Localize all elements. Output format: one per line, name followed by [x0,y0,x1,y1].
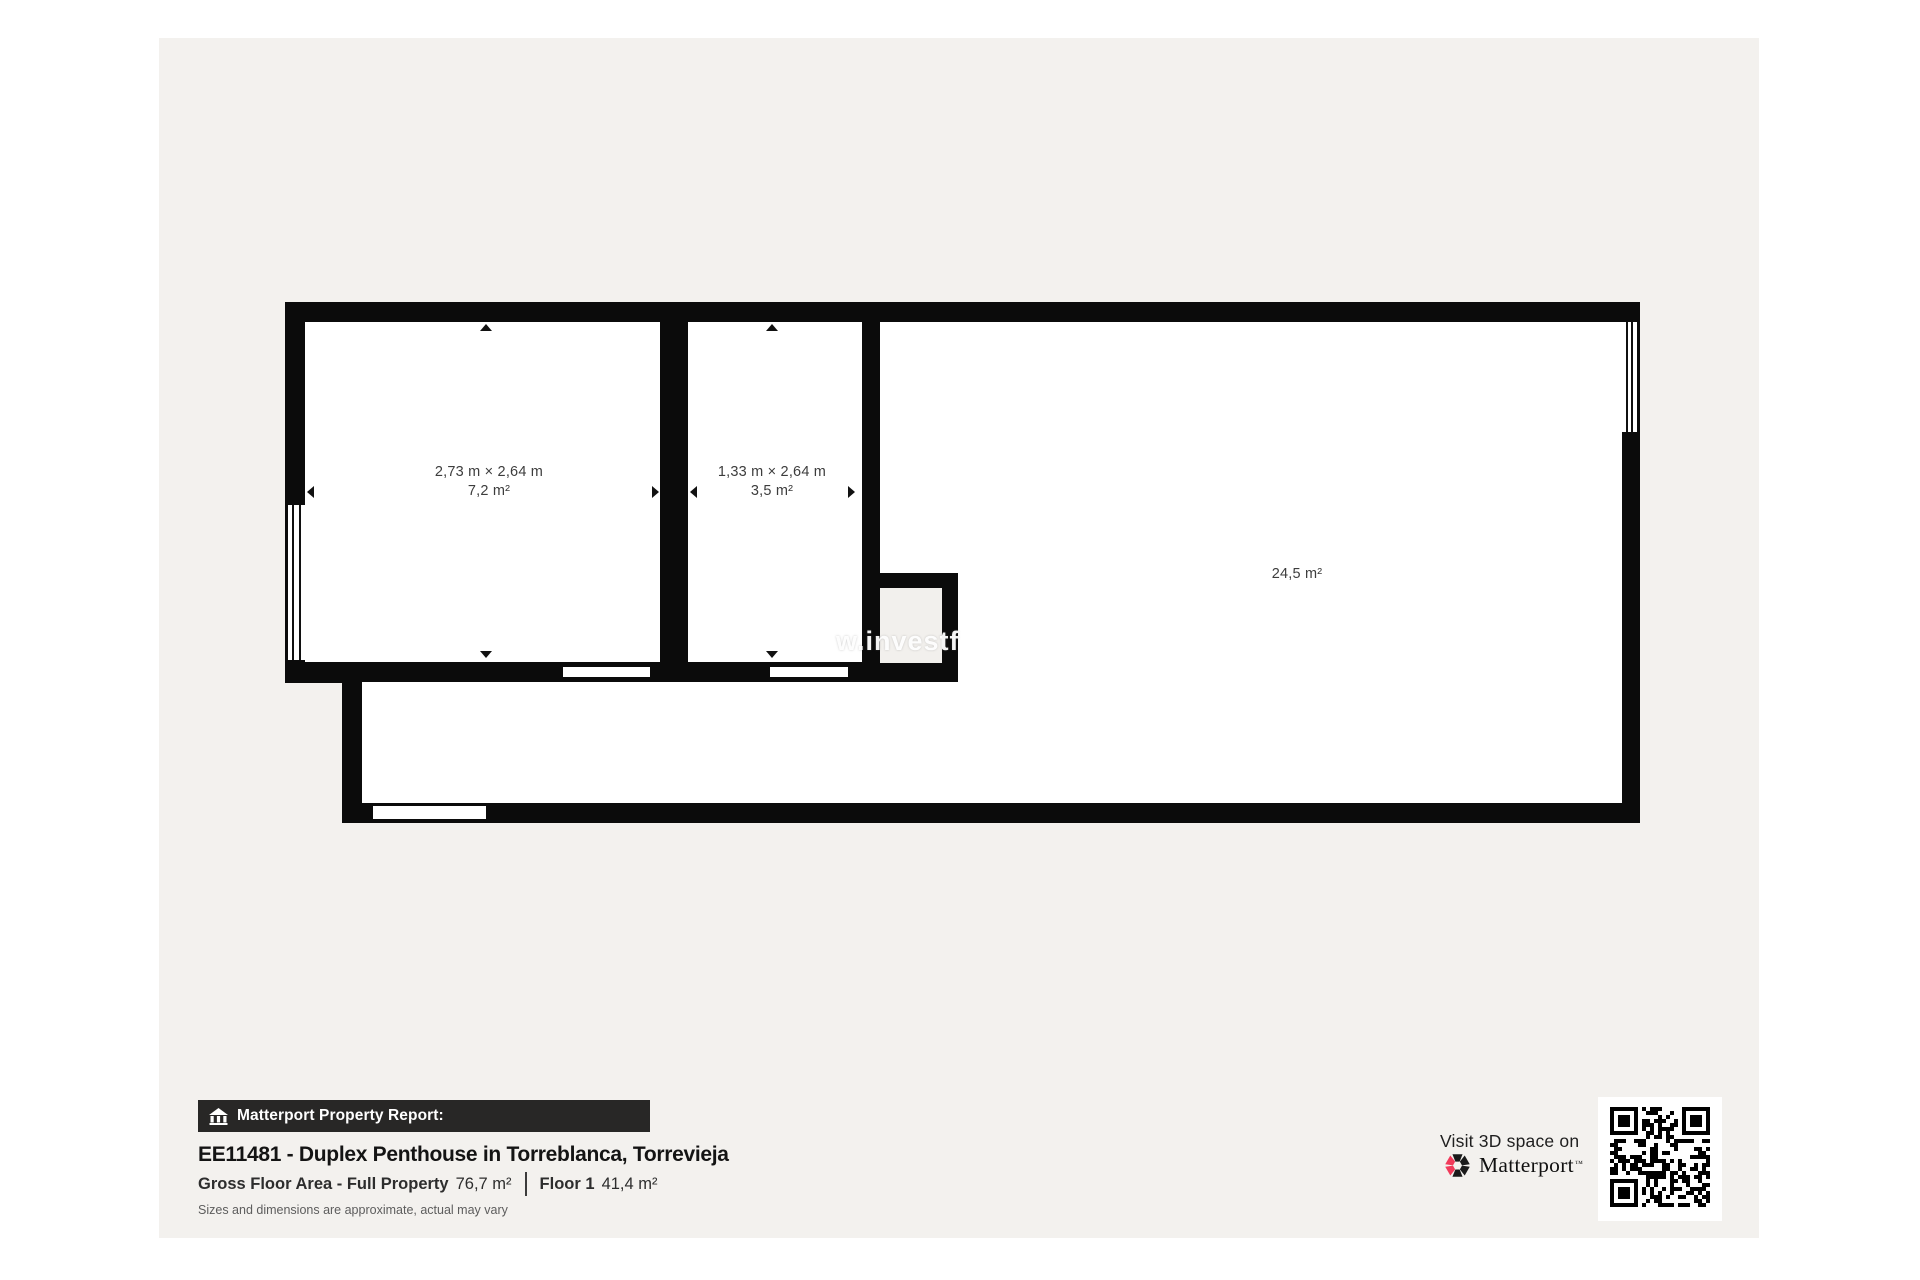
report-header-label: Matterport Property Report: [237,1107,444,1125]
window-left [288,505,305,660]
summary-divider [525,1172,527,1196]
dimension-arrow-left-icon [307,486,314,498]
report-header-bar: Matterport Property Report: [198,1100,650,1132]
window-right-pane-line [1631,322,1633,432]
room-3-area: 24,5 m² [1222,565,1372,584]
dimension-arrow-up-icon [766,324,778,331]
room-1-area: 7,2 m² [389,482,589,501]
window-left-pane-line [299,505,301,660]
visit-3d-label: Visit 3D space on [1440,1131,1579,1152]
matterport-pinwheel-icon [1444,1152,1471,1179]
qr-pattern [1610,1107,1710,1212]
room-2-dimensions: 1,33 m × 2,64 m [672,463,872,482]
lower-strip-interior [362,682,1622,803]
gross-floor-area-value: 76,7 m² [456,1175,512,1194]
window-right-pane-line [1626,322,1628,432]
qr-code [1598,1097,1722,1221]
dimension-arrow-up-icon [480,324,492,331]
room-2-label: 1,33 m × 2,64 m 3,5 m² [672,463,872,501]
matterport-logo: Matterport™ [1444,1152,1582,1179]
dimension-arrow-down-icon [766,651,778,658]
matterport-wordmark: Matterport [1479,1153,1574,1178]
floor-label: Floor 1 [540,1175,595,1194]
dimension-arrow-down-icon [480,651,492,658]
room-1-dimensions: 2,73 m × 2,64 m [389,463,589,482]
dimension-arrow-right-icon [652,486,659,498]
trademark-mark: ™ [1575,1159,1583,1168]
room-2-area: 3,5 m² [672,482,872,501]
floor-area-value: 41,4 m² [602,1175,658,1194]
disclaimer-text: Sizes and dimensions are approximate, ac… [198,1203,508,1217]
window-left-pane-line [292,505,294,660]
room-3-label: 24,5 m² [1222,565,1372,584]
building-icon [209,1108,228,1125]
watermark: w.investf [836,626,960,657]
door-opening-room-2 [770,667,848,677]
gross-floor-area-label: Gross Floor Area - Full Property [198,1175,449,1194]
door-opening-room-1 [563,667,650,677]
window-right [1622,322,1637,432]
property-title: EE11481 - Duplex Penthouse in Torreblanc… [198,1143,729,1167]
window-opening-bottom [373,806,486,819]
area-summary: Gross Floor Area - Full Property 76,7 m²… [198,1172,658,1196]
room-1-label: 2,73 m × 2,64 m 7,2 m² [389,463,589,501]
